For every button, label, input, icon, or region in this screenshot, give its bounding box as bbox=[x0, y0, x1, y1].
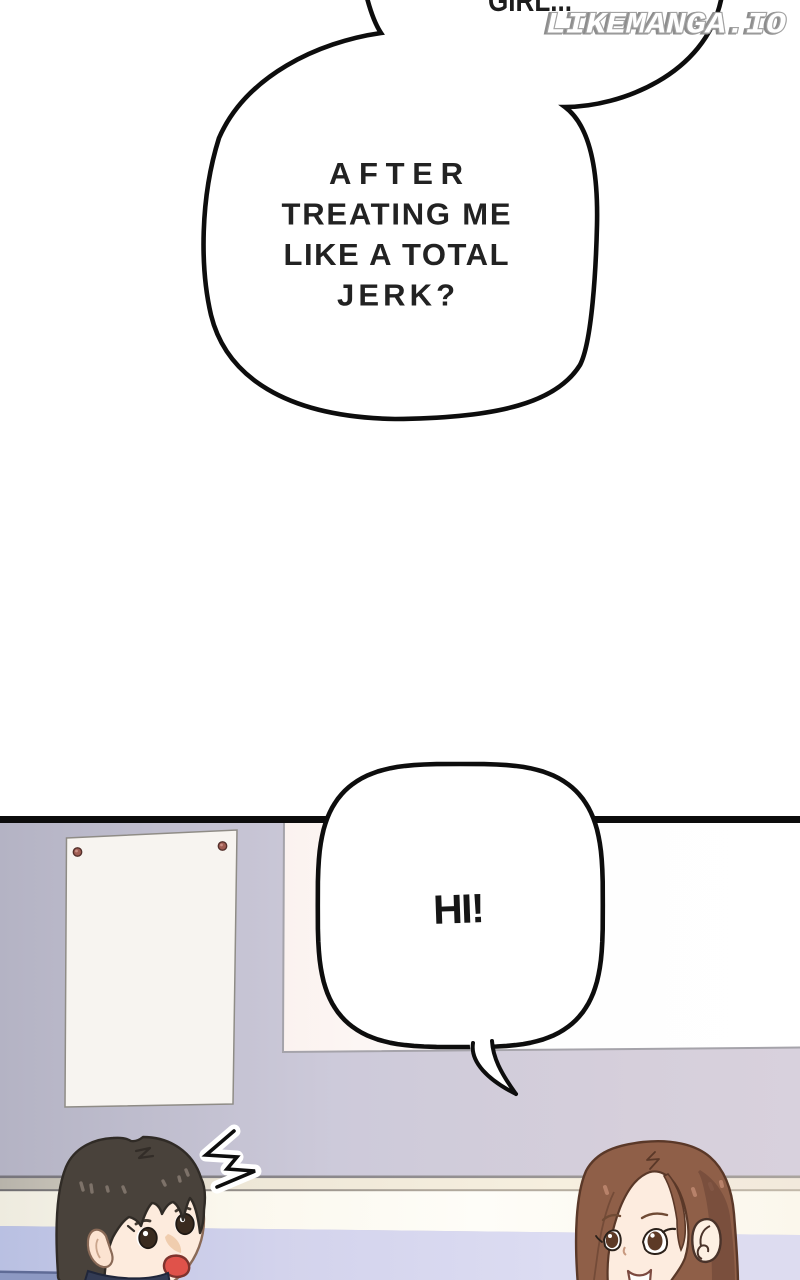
svg-text:TREATING ME: TREATING ME bbox=[282, 197, 511, 232]
svg-text:LIKE A TOTAL: LIKE A TOTAL bbox=[284, 237, 509, 272]
svg-text:HI!: HI! bbox=[432, 885, 484, 933]
svg-text:LIKEMANGA.IO: LIKEMANGA.IO bbox=[546, 9, 786, 43]
svg-text:AFTER: AFTER bbox=[329, 156, 463, 191]
